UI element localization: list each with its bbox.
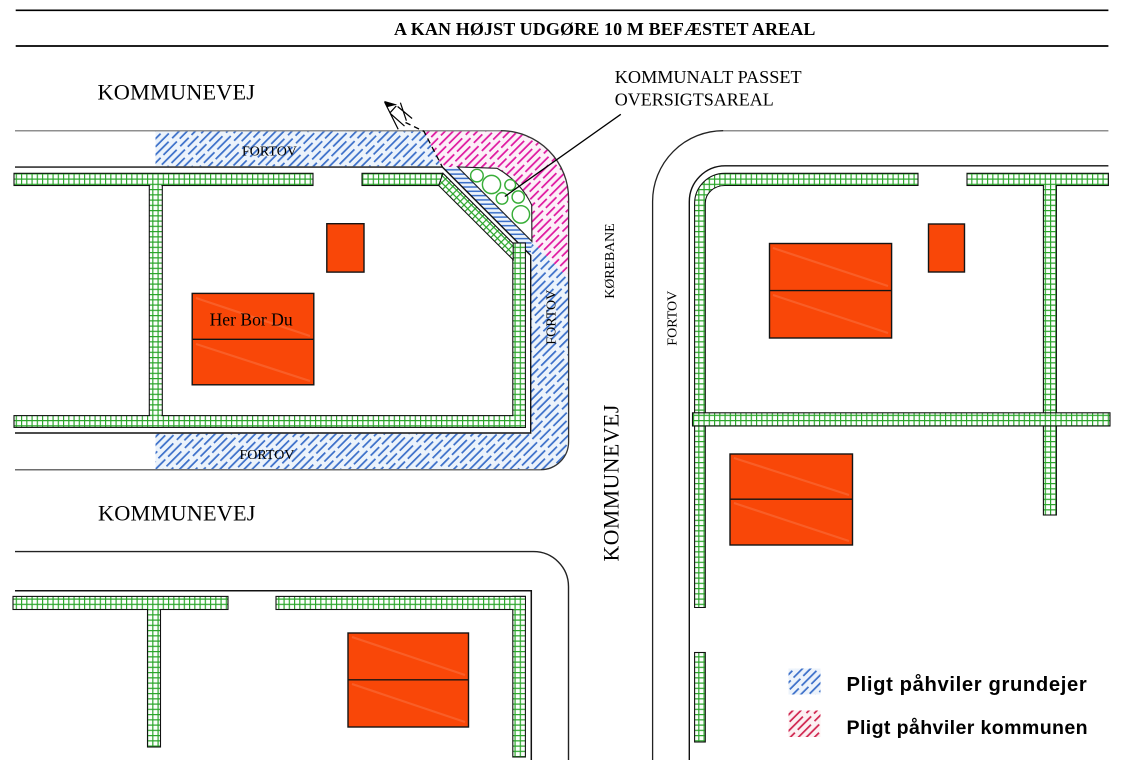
svg-text:KØREBANE: KØREBANE [602,223,617,298]
svg-text:Pligt påhviler grundejer: Pligt påhviler grundejer [847,673,1088,696]
svg-text:A KAN HØJST UDGØRE 10 M BEFÆST: A KAN HØJST UDGØRE 10 M BEFÆSTET AREAL [394,19,815,39]
svg-text:Pligt påhviler kommunen: Pligt påhviler kommunen [847,716,1089,739]
svg-text:Her Bor Du: Her Bor Du [210,310,293,330]
svg-text:KOMMUNEVEJ: KOMMUNEVEJ [98,501,256,526]
svg-text:FORTOV: FORTOV [242,145,297,160]
svg-text:KOMMUNEVEJ: KOMMUNEVEJ [98,79,256,104]
svg-text:FORTOV: FORTOV [666,291,681,346]
svg-text:KOMMUNEVEJ: KOMMUNEVEJ [599,404,623,561]
svg-text:FORTOV: FORTOV [240,448,295,463]
svg-text:FORTOV: FORTOV [545,290,560,345]
svg-text:OVERSIGTSAREAL: OVERSIGTSAREAL [615,90,774,110]
svg-text:KOMMUNALT PASSET: KOMMUNALT PASSET [615,67,802,87]
